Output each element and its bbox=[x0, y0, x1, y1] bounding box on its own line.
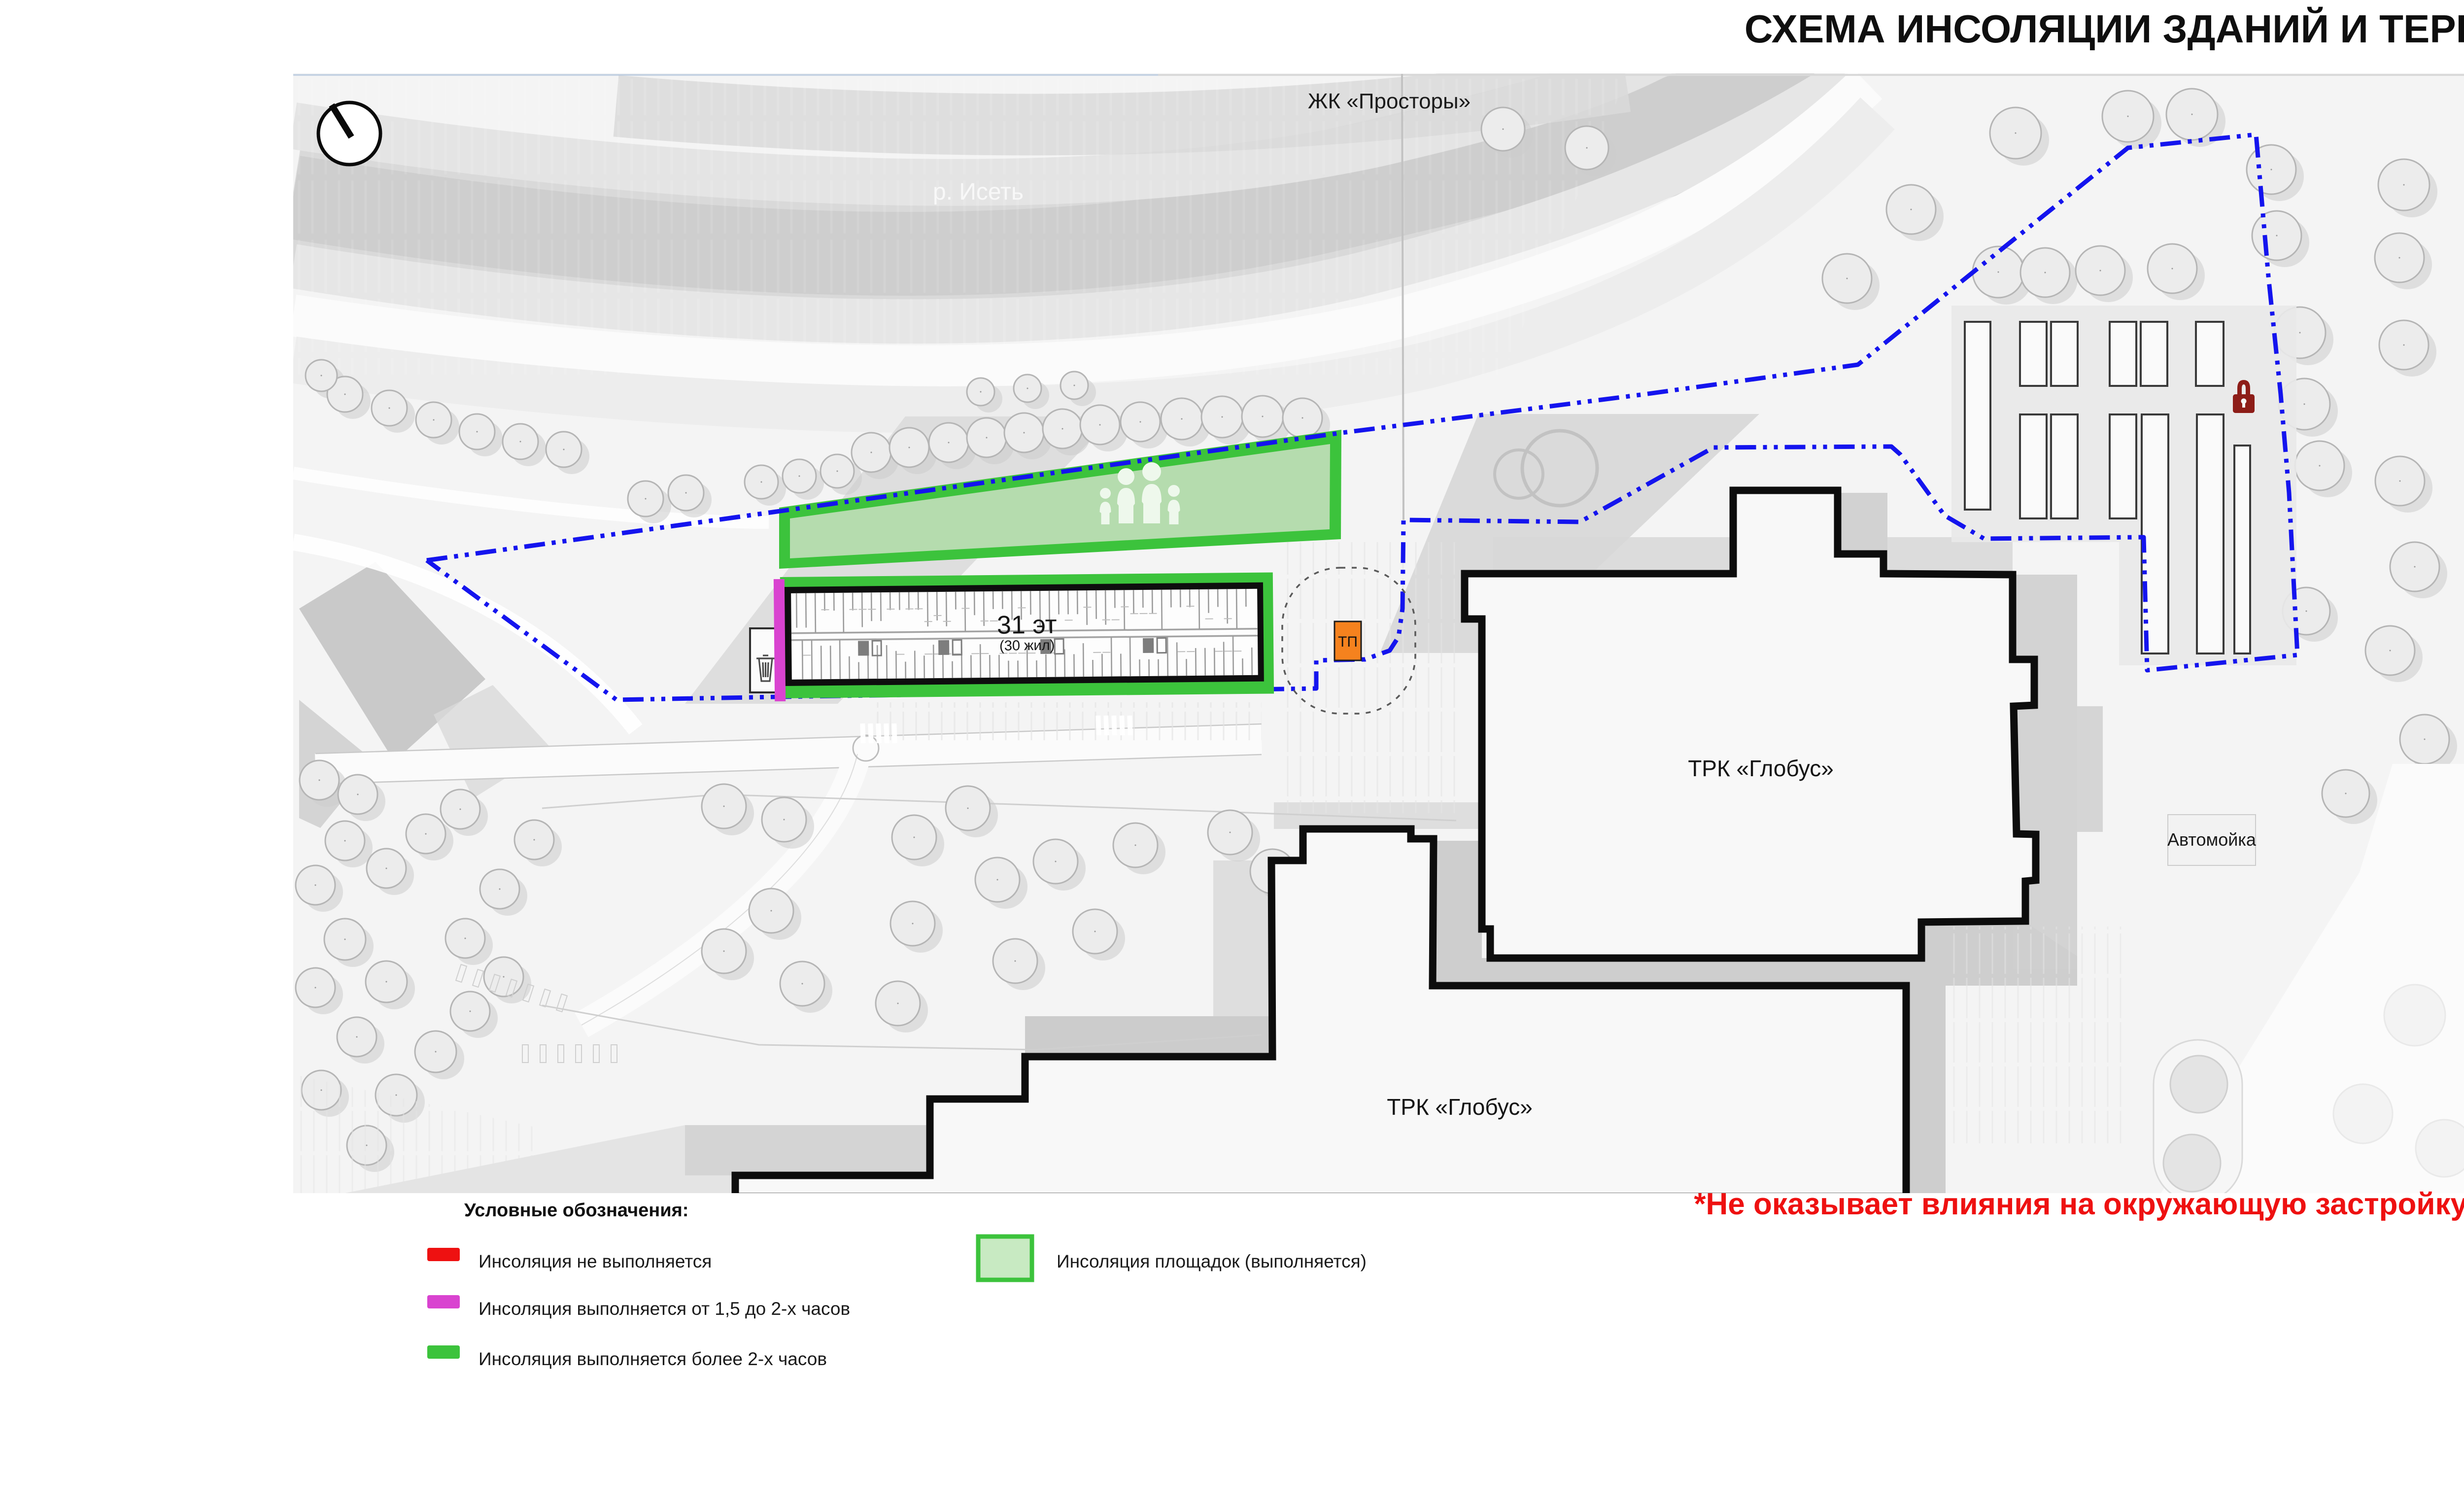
svg-text:ТРК «Глобус»: ТРК «Глобус» bbox=[1387, 1094, 1533, 1120]
svg-text:Инсоляция выполняется более 2-: Инсоляция выполняется более 2-х часов bbox=[479, 1349, 827, 1369]
svg-text:ТП: ТП bbox=[1338, 634, 1358, 650]
svg-text:Условные обозначения:: Условные обозначения: bbox=[464, 1200, 688, 1221]
svg-text:31 эт: 31 эт bbox=[997, 611, 1057, 640]
svg-text:Инсоляция не выполняется: Инсоляция не выполняется bbox=[479, 1251, 712, 1271]
svg-text:*Не оказывает влияния на окруж: *Не оказывает влияния на окружающую заст… bbox=[1694, 1187, 2464, 1221]
svg-text:Автомойка: Автомойка bbox=[2167, 829, 2257, 850]
svg-text:ЖК «Просторы»: ЖК «Просторы» bbox=[1308, 89, 1471, 113]
svg-text:(30 жил): (30 жил) bbox=[999, 638, 1055, 654]
svg-text:ТРК «Глобус»: ТРК «Глобус» bbox=[1688, 755, 1834, 781]
svg-text:Инсоляция площадок (выполняетс: Инсоляция площадок (выполняется) bbox=[1057, 1251, 1367, 1271]
svg-text:р. Исеть: р. Исеть bbox=[933, 179, 1024, 205]
svg-text:СХЕМА ИНСОЛЯЦИИ ЗДАНИЙ И ТЕРРИ: СХЕМА ИНСОЛЯЦИИ ЗДАНИЙ И ТЕРРИТОРИИ bbox=[1745, 6, 2464, 51]
svg-text:Инсоляция выполняется от 1,5 д: Инсоляция выполняется от 1,5 до 2-х часо… bbox=[479, 1299, 850, 1319]
